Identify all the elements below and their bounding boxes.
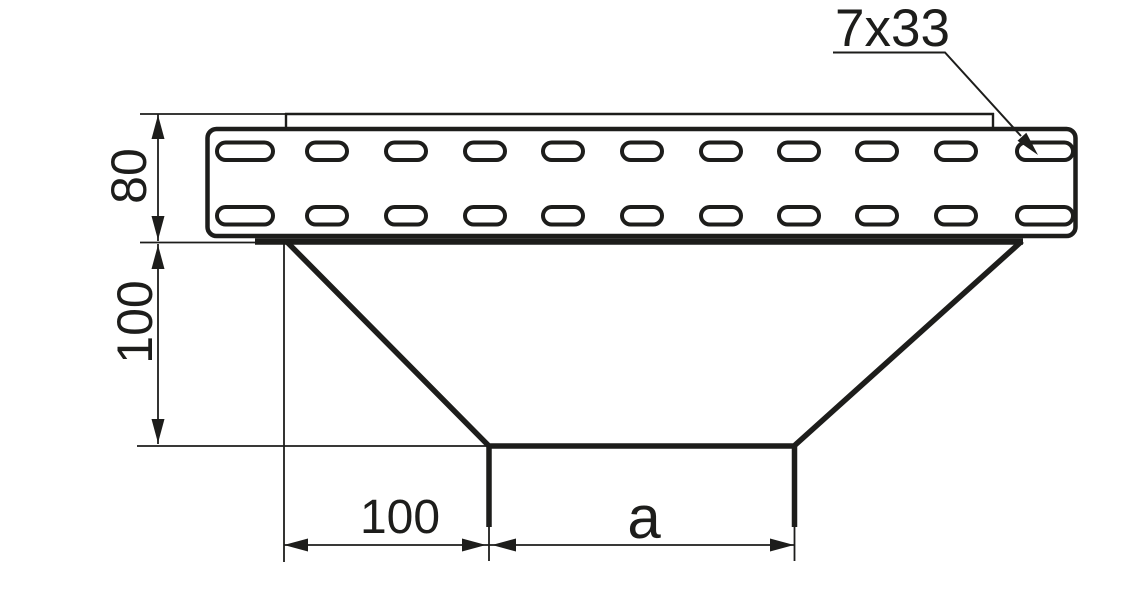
slot [701,143,741,161]
extension-lines [137,243,795,563]
label-branch-width: a [627,484,661,551]
slot-row-bottom [217,207,1073,225]
slot [386,207,426,225]
dimension-labels: 7x33 80 100 100 a [101,0,950,551]
slot [543,207,583,225]
back-rail [140,113,994,128]
slot [936,143,976,161]
slot [465,143,505,161]
cable-tray-technical-drawing: 7x33 80 100 100 a [0,0,1128,615]
slot [543,143,583,161]
slot [622,207,662,225]
branch-trapezoid [286,241,1022,446]
slot [857,143,897,161]
arrowhead-down [152,216,165,240]
slot [857,207,897,225]
slot-row-top [217,143,1073,161]
slot [307,207,347,225]
arrowhead-up [152,245,165,269]
slot [622,143,662,161]
slot [307,143,347,161]
arrowhead-down [152,419,165,443]
slot [465,207,505,225]
arrowhead-up [152,115,165,139]
arrowhead-left [284,539,308,552]
label-branch-offset: 100 [360,491,440,544]
slot-wide [217,143,273,161]
slot [936,207,976,225]
slot-wide [217,207,273,225]
slot [779,143,819,161]
label-perforation-spec: 7x33 [835,0,950,58]
arrowhead-left [492,539,516,552]
slot-wide [1017,207,1073,225]
drawing-canvas: 7x33 80 100 100 a [0,0,1128,615]
label-branch-depth: 100 [107,280,163,363]
slot [386,143,426,161]
arrowhead-right [462,539,486,552]
slot [701,207,741,225]
label-side-height: 80 [101,148,157,204]
arrowhead-right [770,539,794,552]
slot [779,207,819,225]
